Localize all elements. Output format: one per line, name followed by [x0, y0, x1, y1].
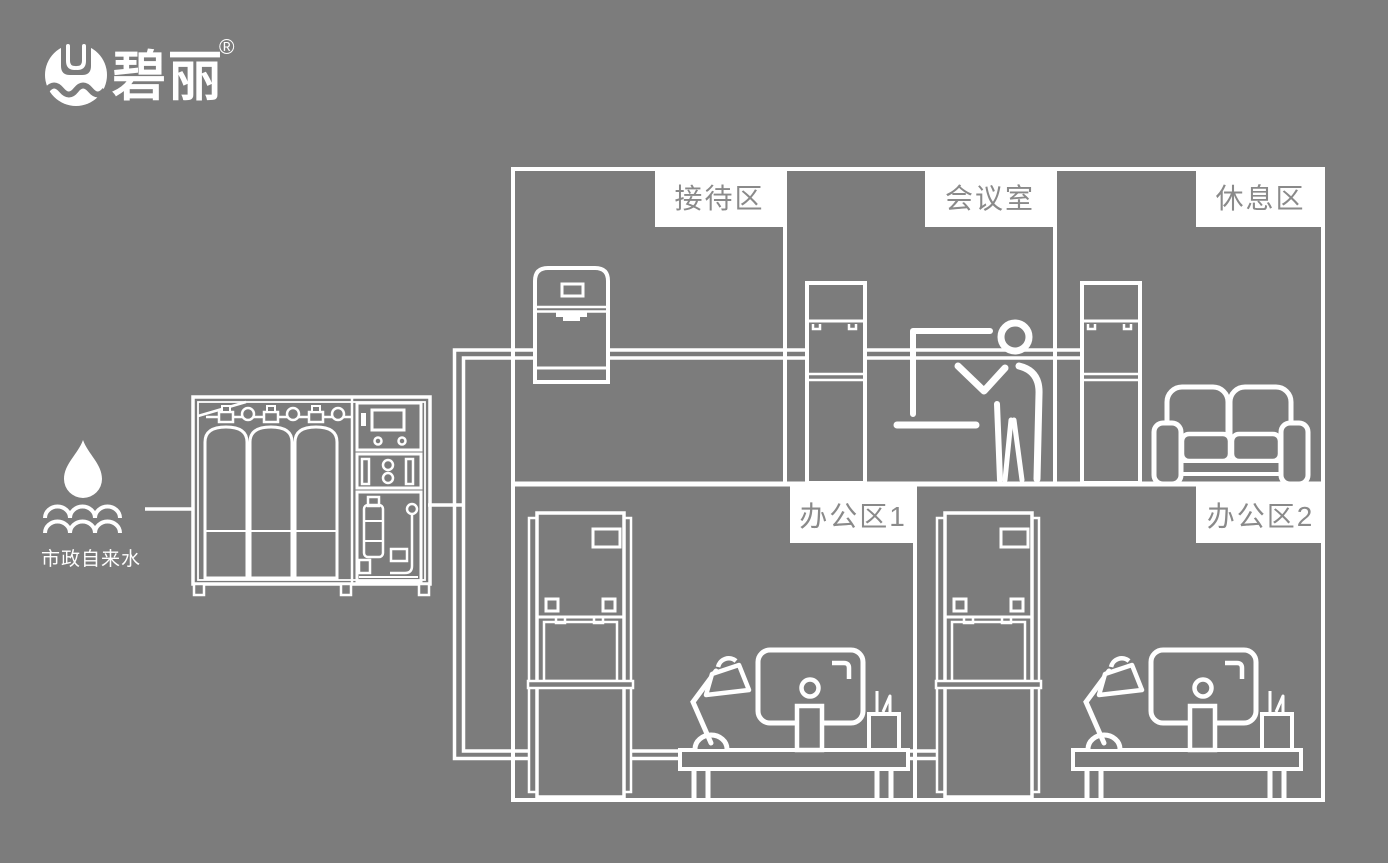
- upright-dispenser-meeting: [807, 283, 865, 483]
- floor-dispenser-office1: [528, 513, 633, 801]
- water-source-label: 市政自来水: [25, 544, 157, 571]
- registered-mark: ®: [219, 36, 234, 60]
- bili-office-water-system-diagram: 碧丽 ® 市政自来水 接待区 会议室 休息区 办公区1 办公区2: [0, 0, 1388, 863]
- room-label-meeting: 会议室: [925, 167, 1055, 227]
- presenter-figure: [958, 323, 1039, 480]
- whiteboard: [913, 331, 990, 414]
- brand-name: 碧丽: [112, 50, 224, 104]
- filter-tank-1: [205, 406, 247, 578]
- wave-lines-icon: [45, 507, 120, 518]
- filter-tank-2: [250, 406, 292, 578]
- room-label-reception: 接待区: [655, 167, 784, 227]
- control-display: [372, 410, 404, 430]
- meeting-room-scene: [897, 323, 1039, 480]
- desk-office2: [1073, 650, 1301, 799]
- sofa: [1154, 387, 1308, 484]
- filter-tank-3: [295, 406, 337, 578]
- control-cabinet: [352, 397, 421, 584]
- central-purifier-equipment: [193, 397, 430, 595]
- room-label-lounge: 休息区: [1196, 167, 1325, 227]
- water-drop-icon: [64, 440, 102, 498]
- room-label-office2: 办公区2: [1196, 486, 1325, 543]
- desk-office1: [680, 650, 908, 799]
- water-source: [45, 440, 120, 533]
- upright-dispenser-lounge: [1082, 283, 1140, 483]
- water-cup-logo-icon: [45, 42, 107, 106]
- floor-dispenser-office2: [936, 513, 1041, 801]
- countertop-dispenser: [535, 268, 608, 382]
- room-label-office1: 办公区1: [790, 486, 916, 543]
- diagram-line-art: [0, 0, 1388, 863]
